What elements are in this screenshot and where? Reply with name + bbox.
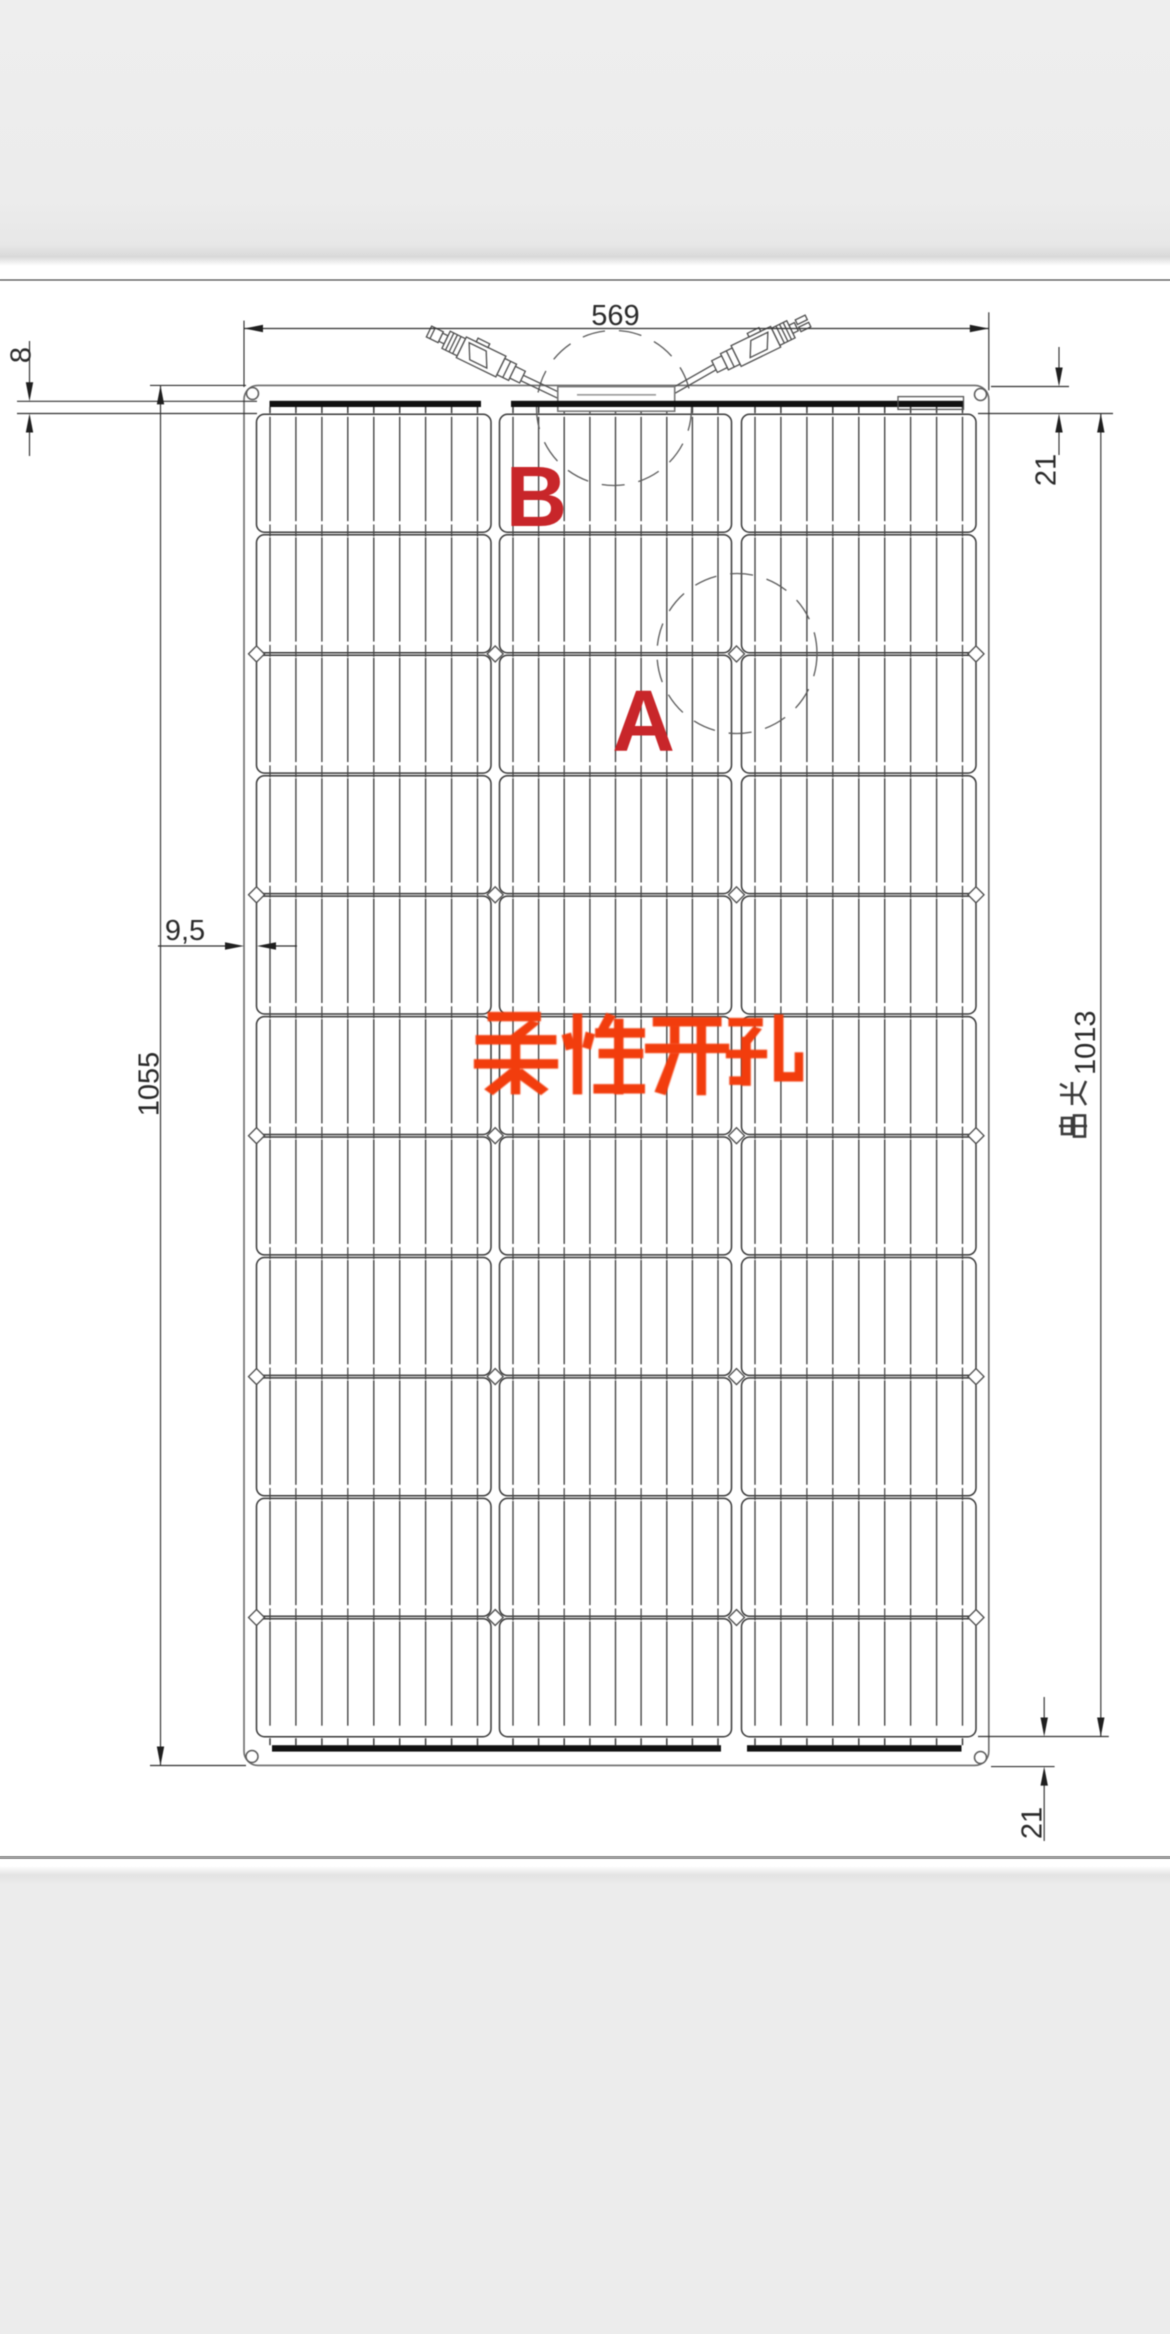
svg-text:569: 569 bbox=[591, 300, 639, 332]
svg-text:B: B bbox=[506, 450, 567, 545]
svg-text:21: 21 bbox=[1031, 454, 1063, 486]
svg-text:A: A bbox=[612, 673, 675, 770]
svg-text:21: 21 bbox=[1017, 1807, 1049, 1839]
svg-text:8: 8 bbox=[6, 347, 38, 363]
svg-text:1013: 1013 bbox=[1070, 1010, 1102, 1075]
svg-text:1055: 1055 bbox=[134, 1052, 166, 1117]
svg-text:9,5: 9,5 bbox=[165, 915, 205, 947]
